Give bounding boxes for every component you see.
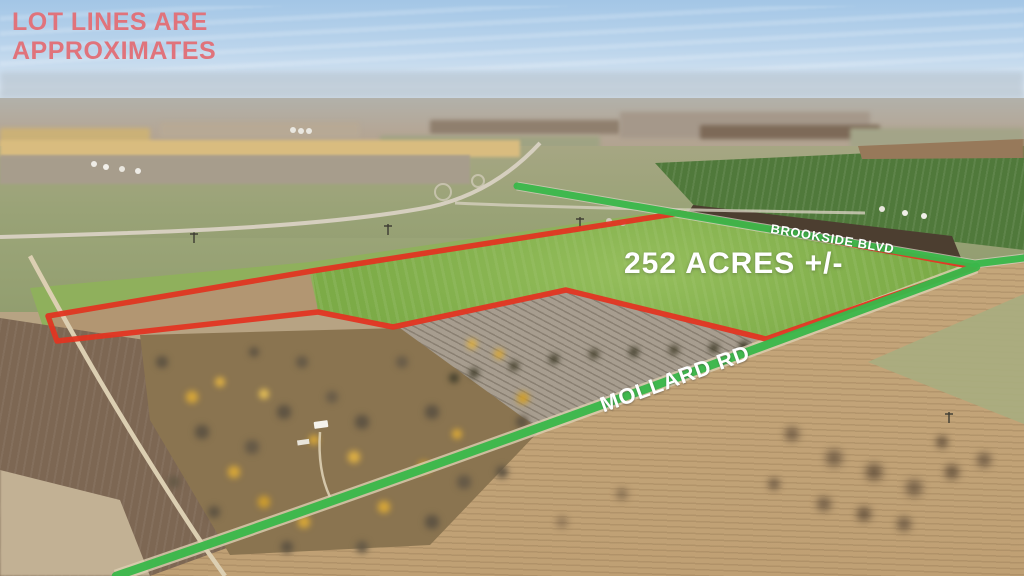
acreage-label: 252 ACRES +/- [624, 247, 843, 281]
aerial-photo: LOT LINES ARE APPROXIMATES 252 ACRES +/-… [0, 0, 1024, 576]
disclaimer-text: LOT LINES ARE APPROXIMATES [12, 8, 216, 66]
disclaimer-line1: LOT LINES ARE [12, 8, 216, 37]
interchange-ramp [435, 184, 451, 200]
mollard-highlight-line [116, 267, 976, 576]
annotation-overlay [0, 0, 1024, 576]
interchange-ramp [472, 175, 484, 187]
highway [0, 143, 540, 237]
disclaimer-line2: APPROXIMATES [12, 37, 216, 66]
driveway [319, 432, 330, 497]
